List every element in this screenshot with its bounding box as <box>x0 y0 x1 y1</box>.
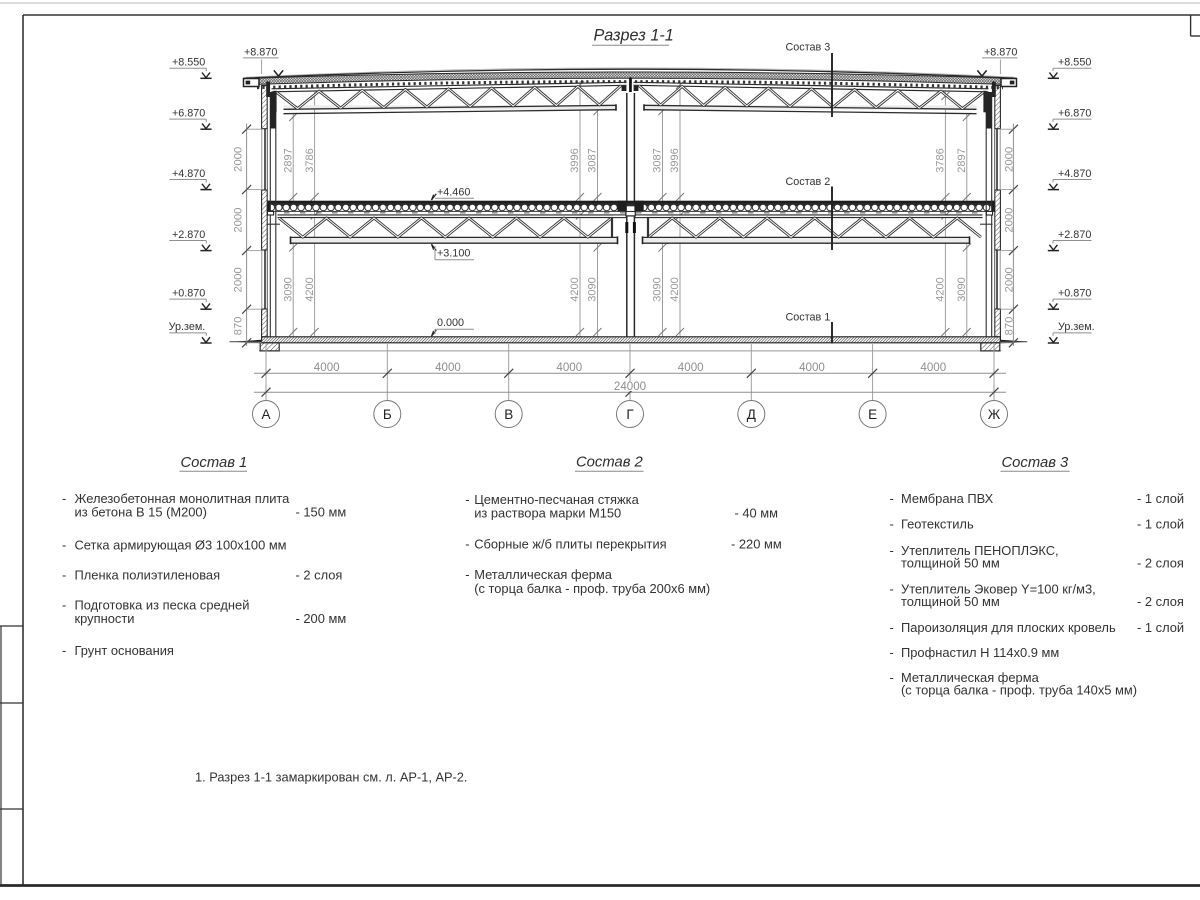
svg-text:Ур.зем.: Ур.зем. <box>1058 321 1095 333</box>
svg-text:2000: 2000 <box>233 147 245 172</box>
svg-text:-: - <box>890 581 894 596</box>
svg-text:Грунт основания: Грунт основания <box>75 643 174 658</box>
svg-text:толщиной 50 мм: толщиной 50 мм <box>901 556 1000 571</box>
svg-text:Мембрана ПВХ: Мембрана ПВХ <box>901 491 994 506</box>
svg-text:-: - <box>62 598 66 613</box>
svg-text:В: В <box>504 407 513 422</box>
svg-text:2000: 2000 <box>1004 208 1016 233</box>
svg-text:- 2 слоя: - 2 слоя <box>1137 556 1184 571</box>
svg-text:-: - <box>890 543 894 558</box>
svg-text:Пароизоляция для плоских крове: Пароизоляция для плоских кровель <box>901 620 1116 635</box>
svg-text:-: - <box>465 492 469 507</box>
svg-text:870: 870 <box>233 317 245 336</box>
svg-text:-: - <box>890 670 894 685</box>
svg-text:-: - <box>62 491 66 506</box>
svg-text:- 1 слой: - 1 слой <box>1137 620 1184 635</box>
svg-text:2000: 2000 <box>233 267 245 292</box>
svg-text:-: - <box>890 645 894 660</box>
svg-text:Состав 1: Состав 1 <box>786 311 831 323</box>
svg-text:+6.870: +6.870 <box>172 107 205 119</box>
svg-text:4000: 4000 <box>314 361 340 374</box>
svg-text:2897: 2897 <box>956 148 968 172</box>
svg-text:Профнастил Н 114х0.9 мм: Профнастил Н 114х0.9 мм <box>901 645 1059 660</box>
svg-text:2000: 2000 <box>1004 267 1016 292</box>
svg-text:-: - <box>465 537 469 552</box>
svg-text:3090: 3090 <box>652 277 664 301</box>
svg-text:из раствора марки М150: из раствора марки М150 <box>474 506 621 521</box>
svg-text:4200: 4200 <box>304 277 316 301</box>
svg-text:2000: 2000 <box>233 208 245 233</box>
svg-text:-: - <box>62 537 66 552</box>
svg-text:Разрез 1-1: Разрез 1-1 <box>594 26 674 44</box>
svg-text:+2.870: +2.870 <box>172 229 205 241</box>
svg-text:4000: 4000 <box>799 361 825 374</box>
svg-text:- 40 мм: - 40 мм <box>735 506 779 521</box>
svg-text:3996: 3996 <box>569 148 581 172</box>
svg-text:4200: 4200 <box>935 277 947 301</box>
svg-text:3087: 3087 <box>652 148 664 172</box>
svg-text:Геотекстиль: Геотекстиль <box>901 517 974 532</box>
svg-text:- 2 слоя: - 2 слоя <box>1137 594 1184 609</box>
svg-text:2000: 2000 <box>1004 147 1016 172</box>
svg-text:- 220 мм: - 220 мм <box>731 537 782 552</box>
svg-text:Состав 3: Состав 3 <box>1002 455 1070 471</box>
svg-text:Е: Е <box>868 407 877 422</box>
svg-text:2897: 2897 <box>282 148 294 172</box>
svg-text:-: - <box>890 517 894 532</box>
svg-text:крупности: крупности <box>75 611 135 626</box>
svg-text:Сборные ж/б плиты перекрытия: Сборные ж/б плиты перекрытия <box>474 537 666 552</box>
svg-text:+8.870: +8.870 <box>244 47 277 59</box>
svg-text:+0.870: +0.870 <box>172 287 205 299</box>
svg-text:из бетона В 15 (М200): из бетона В 15 (М200) <box>75 505 207 520</box>
svg-text:А: А <box>261 407 270 422</box>
svg-text:3087: 3087 <box>587 148 599 172</box>
svg-text:- 2 слоя: - 2 слоя <box>296 567 343 582</box>
svg-text:Состав 2: Состав 2 <box>786 176 831 188</box>
svg-text:Сетка армирующая Ø3 100х100 мм: Сетка армирующая Ø3 100х100 мм <box>75 537 287 552</box>
svg-text:+3.100: +3.100 <box>437 248 470 260</box>
svg-text:(с торца балка - проф. труба 2: (с торца балка - проф. труба 200х6 мм) <box>474 581 710 596</box>
svg-text:Г: Г <box>626 407 634 422</box>
svg-text:3090: 3090 <box>282 277 294 301</box>
svg-text:3786: 3786 <box>304 148 316 172</box>
svg-text:толщиной 50 мм: толщиной 50 мм <box>901 594 1000 609</box>
svg-text:870: 870 <box>1004 317 1016 336</box>
svg-text:+4.870: +4.870 <box>172 168 205 180</box>
svg-text:-: - <box>890 620 894 635</box>
svg-text:3786: 3786 <box>935 148 947 172</box>
svg-text:+8.550: +8.550 <box>172 57 205 69</box>
svg-text:Состав 1: Состав 1 <box>181 455 248 471</box>
svg-text:24000: 24000 <box>614 380 646 393</box>
svg-text:+4.460: +4.460 <box>437 186 470 198</box>
svg-text:Д: Д <box>747 407 756 422</box>
svg-text:-: - <box>890 491 894 506</box>
svg-text:Состав 3: Состав 3 <box>786 42 831 54</box>
svg-text:-: - <box>62 567 66 582</box>
svg-text:+0.870: +0.870 <box>1058 287 1091 299</box>
svg-text:1. Разрез 1-1 замаркирован см.: 1. Разрез 1-1 замаркирован см. л. АР-1, … <box>195 770 467 785</box>
svg-text:+2.870: +2.870 <box>1058 229 1091 241</box>
svg-text:Состав 2: Состав 2 <box>576 455 644 471</box>
svg-text:+8.550: +8.550 <box>1058 57 1091 69</box>
svg-text:- 1 слой: - 1 слой <box>1137 491 1184 506</box>
svg-text:3996: 3996 <box>669 148 681 172</box>
svg-text:4000: 4000 <box>678 361 704 374</box>
svg-text:-: - <box>62 643 66 658</box>
svg-text:Пленка полиэтиленовая: Пленка полиэтиленовая <box>75 567 221 582</box>
svg-text:4200: 4200 <box>669 277 681 301</box>
svg-text:3090: 3090 <box>956 277 968 301</box>
svg-text:+6.870: +6.870 <box>1058 107 1091 119</box>
svg-text:Ж: Ж <box>988 407 1001 422</box>
svg-text:4000: 4000 <box>556 361 582 374</box>
svg-text:4000: 4000 <box>435 361 461 374</box>
svg-text:- 150 мм: - 150 мм <box>296 505 347 520</box>
svg-text:- 200 мм: - 200 мм <box>296 611 347 626</box>
svg-text:Ур.зем.: Ур.зем. <box>169 321 206 333</box>
svg-text:-: - <box>465 567 469 582</box>
svg-text:0.000: 0.000 <box>437 317 464 329</box>
svg-text:4000: 4000 <box>920 361 946 374</box>
svg-text:4200: 4200 <box>569 277 581 301</box>
svg-text:Б: Б <box>383 407 392 422</box>
svg-text:+8.870: +8.870 <box>984 47 1017 59</box>
svg-text:- 1 слой: - 1 слой <box>1137 517 1184 532</box>
svg-text:+4.870: +4.870 <box>1058 168 1091 180</box>
svg-text:(с торца балка - проф. труба 1: (с торца балка - проф. труба 140х5 мм) <box>901 683 1137 698</box>
svg-text:3090: 3090 <box>587 277 599 301</box>
